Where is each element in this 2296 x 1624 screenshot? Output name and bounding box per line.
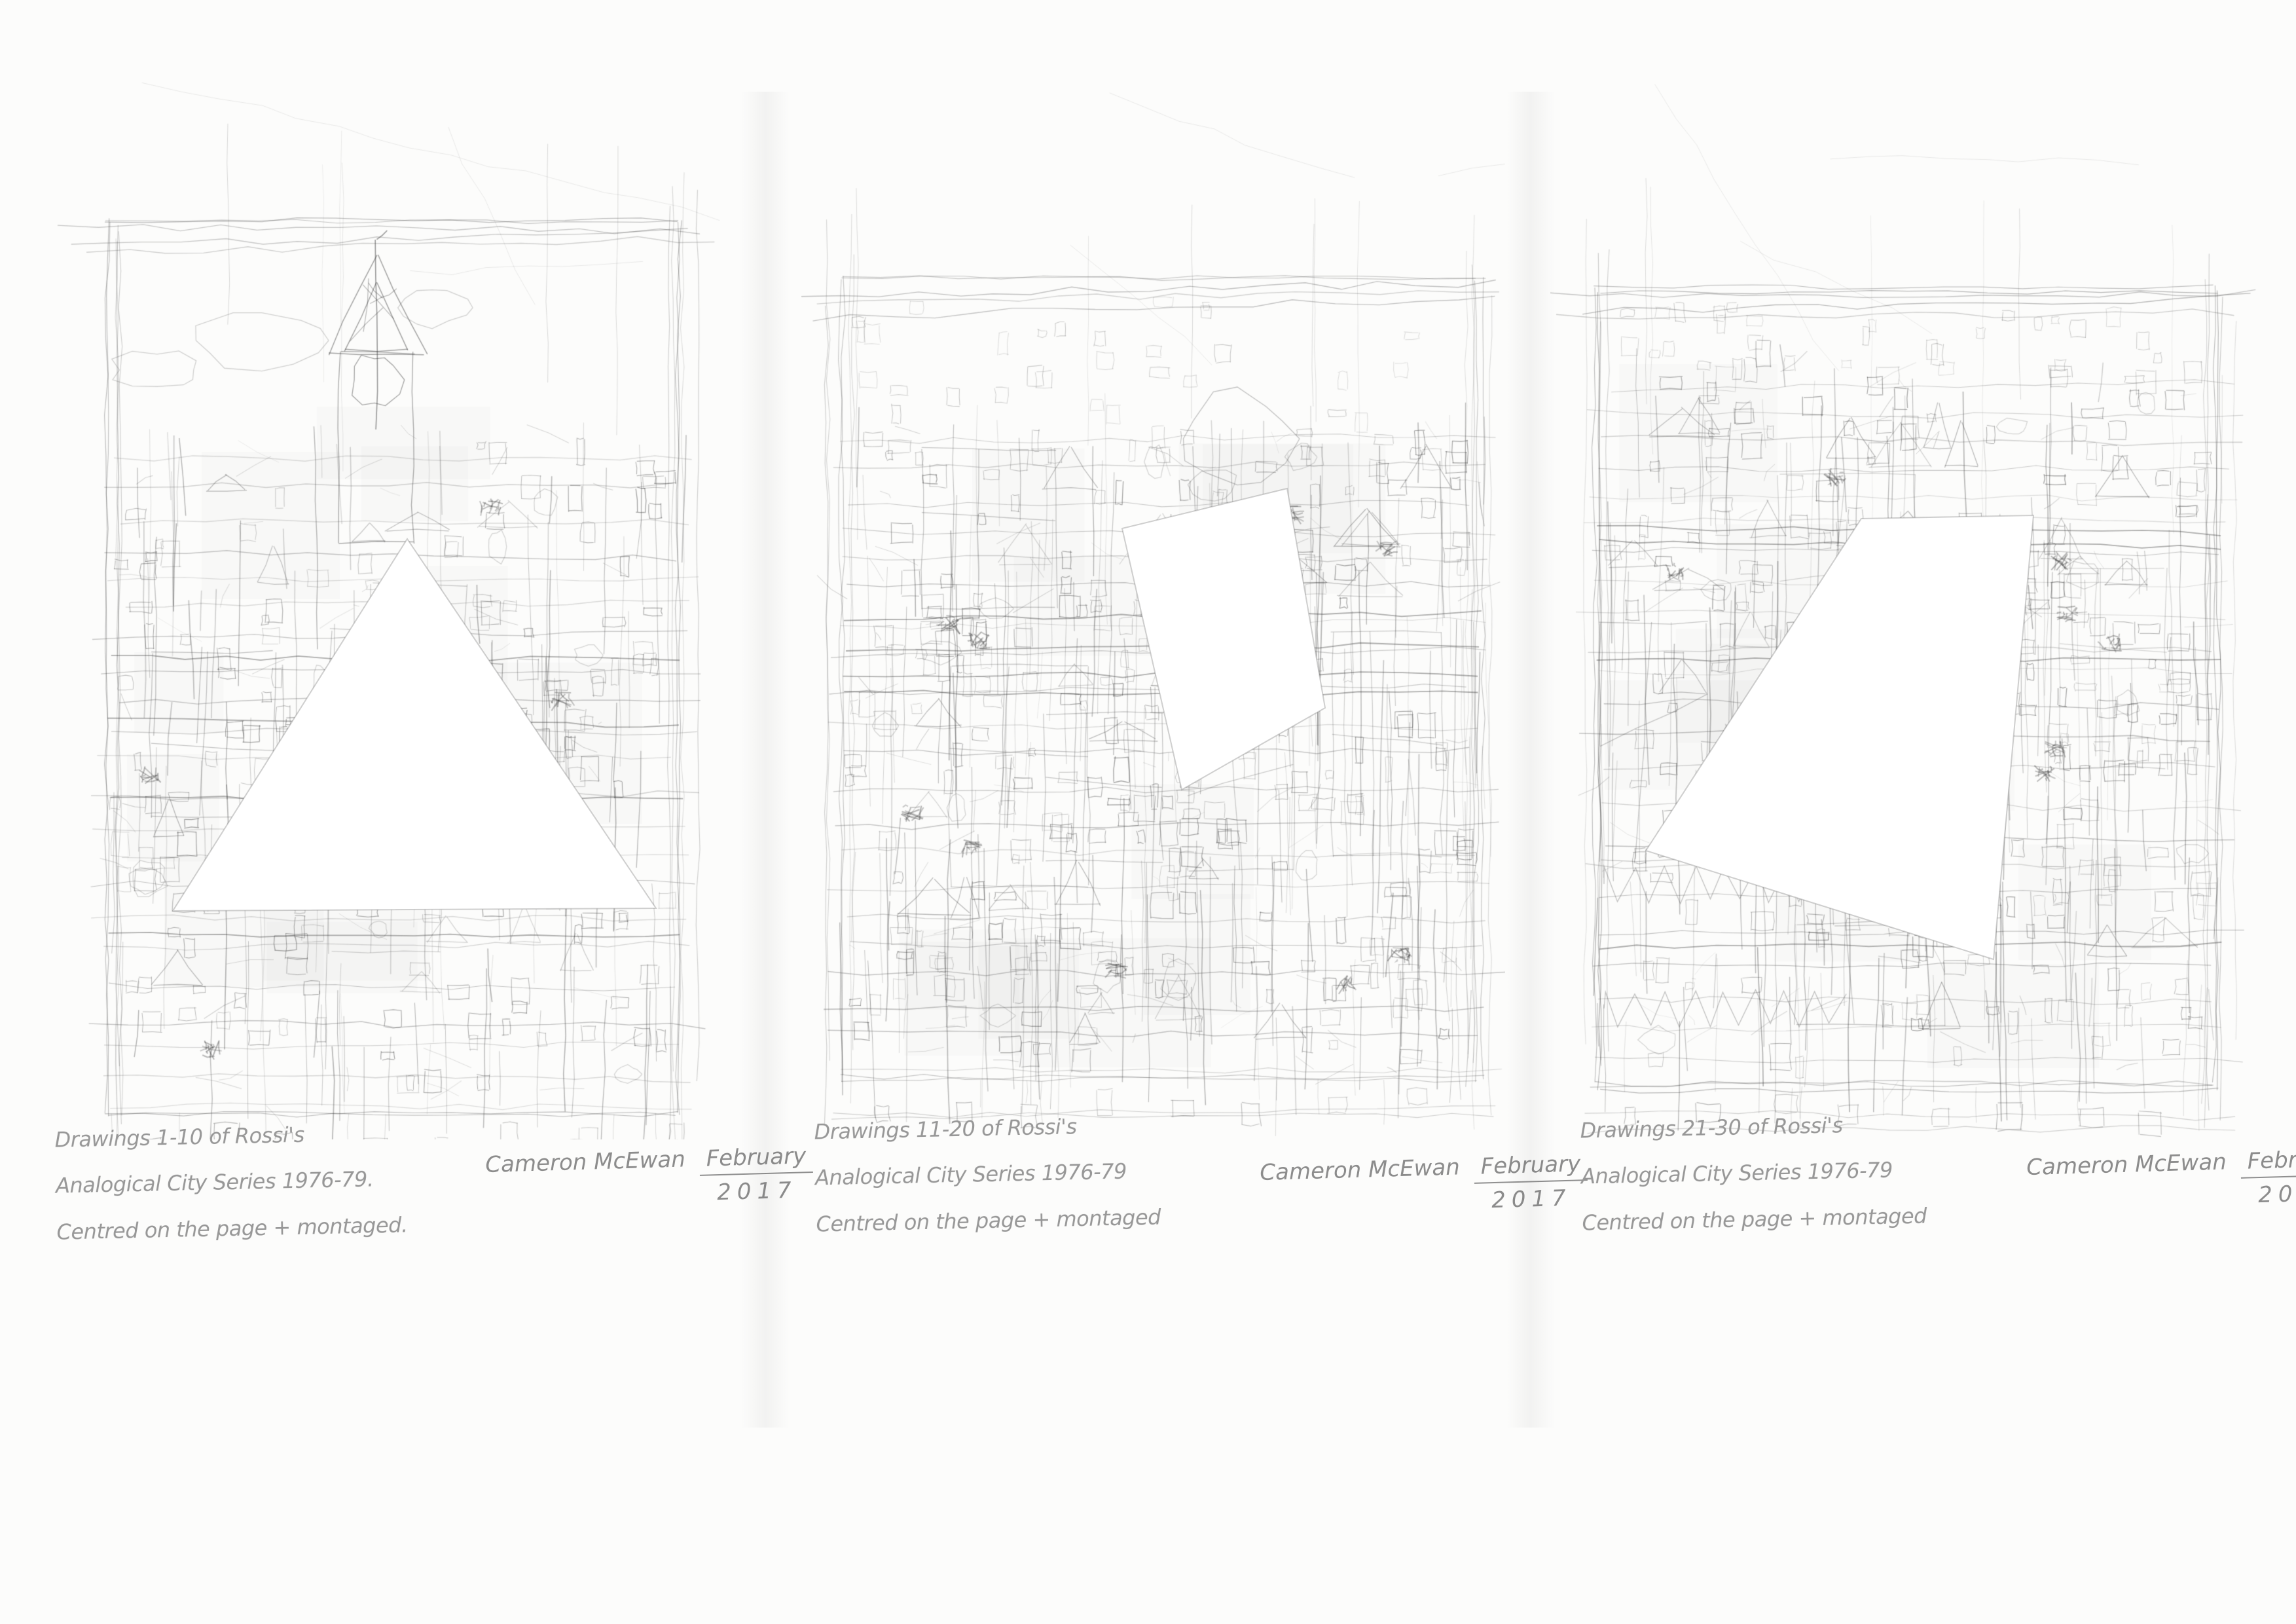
caption-line-1: Drawings 21-30 of Rossi's [1580,1101,1925,1154]
drawing-panel-1: Drawings 1-10 of Rossi's Analogical City… [0,0,765,1624]
caption-line-3: Centred on the page + montaged [1582,1192,1927,1246]
scanned-artwork-page: Drawings 1-10 of Rossi's Analogical City… [0,0,2296,1624]
signature-name: Cameron McEwan [2026,1149,2227,1181]
signature-month: February [2240,1145,2296,1179]
sheet-edge-shadow [1506,92,1555,1428]
caption: Drawings 11-20 of Rossi's Analogical Cit… [814,1102,1161,1247]
caption: Drawings 21-30 of Rossi's Analogical Cit… [1580,1101,1927,1246]
caption-line-1: Drawings 1-10 of Rossi's [54,1109,407,1163]
city-sketch-2 [785,72,1505,1139]
signature-name: Cameron McEwan [485,1146,685,1178]
caption-line-2: Analogical City Series 1976-79 [814,1148,1160,1201]
caption-line-1: Drawings 11-20 of Rossi's [814,1102,1159,1155]
caption-line-3: Centred on the page + montaged. [56,1202,409,1255]
caption-line-2: Analogical City Series 1976-79 [1580,1147,1926,1200]
signature-name: Cameron McEwan [1260,1154,1460,1186]
signature-year: 2017 [2258,1180,2296,1208]
drawing-panel-2: Drawings 11-20 of Rossi's Analogical Cit… [765,0,1531,1624]
city-sketch-1 [20,72,740,1139]
sheet-edge-shadow [741,92,790,1428]
drawing-panel-3: Drawings 21-30 of Rossi's Analogical Cit… [1531,0,2296,1624]
caption-line-2: Analogical City Series 1976-79. [55,1156,407,1209]
artist-signature: Cameron McEwan February 2017 [2026,1145,2296,1215]
city-sketch-3 [1550,72,2270,1139]
caption-line-3: Centred on the page + montaged [816,1194,1161,1247]
caption: Drawings 1-10 of Rossi's Analogical City… [54,1109,408,1255]
